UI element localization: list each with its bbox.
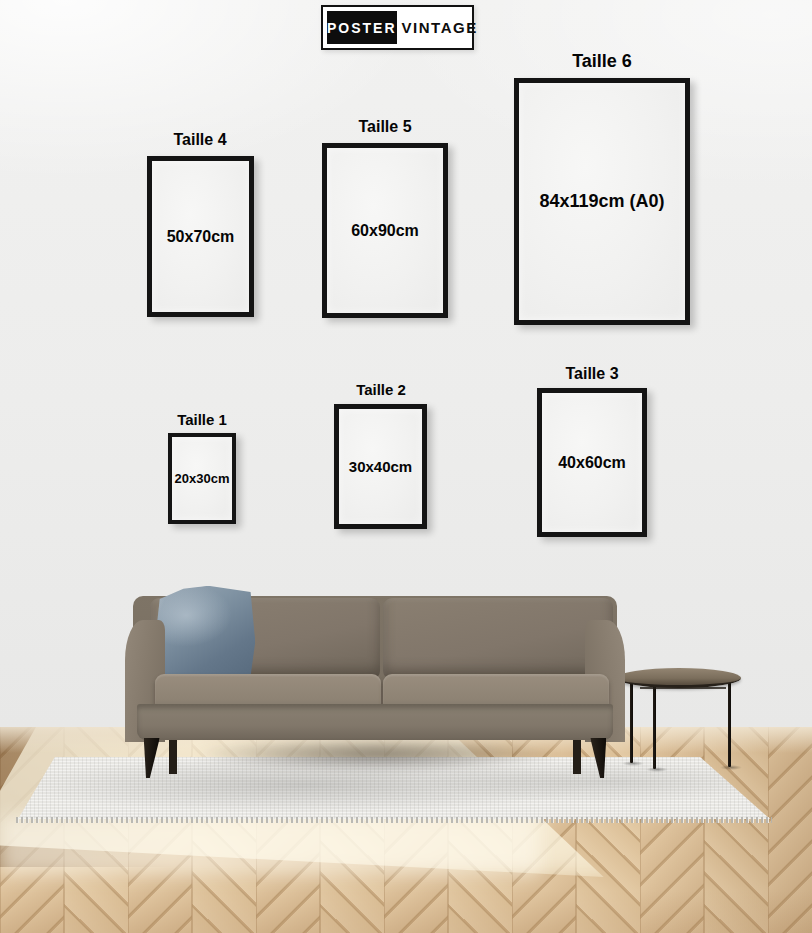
table-top: [617, 668, 741, 688]
frame-label-taille-3: Taille 3: [565, 365, 618, 383]
frame-label-taille-5: Taille 5: [358, 118, 411, 136]
sofa-leg-back-right: [573, 740, 581, 774]
sofa: [125, 592, 625, 785]
table-leg: [630, 678, 633, 763]
blue-pillow: [153, 584, 256, 683]
sofa-leg-front-left: [140, 738, 159, 778]
table-leg: [728, 678, 731, 767]
frame-size-taille-2: 30x40cm: [349, 458, 412, 475]
frame-size-taille-1: 20x30cm: [175, 471, 230, 486]
frame-label-taille-2: Taille 2: [356, 381, 406, 398]
poster-vintage-logo: POSTER VINTAGE: [321, 5, 474, 50]
sofa-leg-back-left: [169, 740, 177, 774]
frame-size-taille-4: 50x70cm: [167, 228, 235, 246]
floor-bottom-shade: [0, 891, 812, 933]
frame-box-taille-1: 20x30cm: [168, 433, 236, 524]
table-foot-shadow: [622, 761, 644, 766]
sofa-leg-front-right: [590, 738, 609, 778]
table-foot-shadow: [646, 767, 668, 772]
table-leg: [653, 682, 656, 769]
frame-box-taille-3: 40x60cm: [537, 388, 647, 537]
frame-box-taille-5: 60x90cm: [322, 143, 448, 318]
sunlight-strip: [0, 815, 540, 875]
frame-size-taille-5: 60x90cm: [351, 222, 419, 240]
rug-fringe: [16, 817, 772, 823]
sofa-back-cushion-right: [383, 598, 613, 680]
frame-box-taille-6: 84x119cm (A0): [514, 78, 690, 325]
table-foot-shadow: [720, 765, 742, 770]
frame-size-taille-3: 40x60cm: [558, 454, 626, 472]
frame-size-taille-6: 84x119cm (A0): [539, 191, 664, 212]
sofa-base: [137, 704, 613, 740]
frame-box-taille-4: 50x70cm: [147, 156, 254, 317]
frame-label-taille-1: Taille 1: [177, 411, 227, 428]
frame-box-taille-2: 30x40cm: [334, 404, 427, 529]
poster-size-guide-scene: POSTER VINTAGE Taille 4 50x70cm Taille 5…: [0, 0, 812, 933]
frame-label-taille-4: Taille 4: [173, 131, 226, 149]
brand-secondary: VINTAGE: [402, 19, 478, 36]
frame-label-taille-6: Taille 6: [572, 51, 632, 72]
brand-primary: POSTER: [327, 11, 397, 44]
